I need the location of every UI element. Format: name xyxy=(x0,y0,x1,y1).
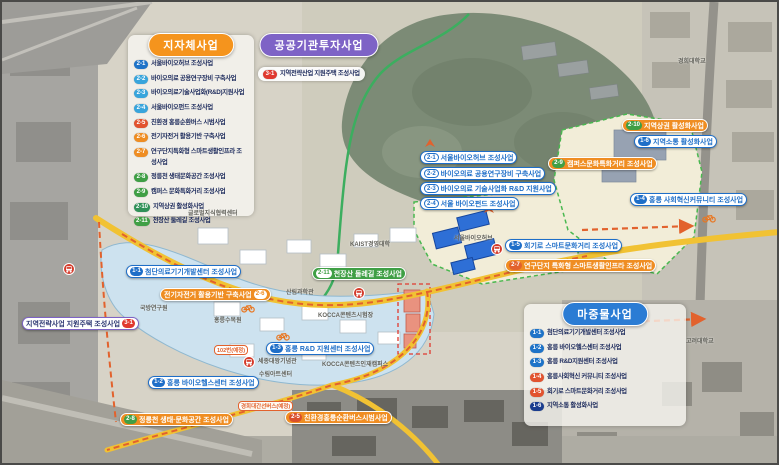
bus-stop-icon xyxy=(353,287,365,299)
map-label-2-3: 2-3바이오의료 기술사업화 R&D 지원사업 xyxy=(420,182,556,195)
map-label-2-10: 2-10지역상권 활성화사업 xyxy=(622,119,708,132)
map-label-badge: 2-1 xyxy=(424,153,439,162)
map-label-1-6: 1-6지역소통 활성화사업 xyxy=(634,135,717,148)
map-label-text: 캠퍼스문화특화거리 조성사업 xyxy=(567,159,653,169)
map-label-text: 전기자전거 활용기반 구축사업 xyxy=(164,290,252,300)
map-label-2-4: 2-4서울 바이오펀드 조성사업 xyxy=(420,197,519,210)
legend-badge: 2-11 xyxy=(134,217,150,226)
map-label-badge: 2-7 xyxy=(509,261,522,270)
map-poi-label: 서울바이오허브 xyxy=(454,233,493,242)
bus-route-tag: 102번(예정) xyxy=(214,345,248,355)
legend-item-label: 캠퍼스 문화특화거리 조성사업 xyxy=(151,187,225,198)
bicycle-icon xyxy=(276,331,290,341)
map-label-badge: 2-3 xyxy=(424,184,439,193)
map-label-1-5: 1-5회기로 스마트문화거리 조성사업 xyxy=(505,239,622,252)
panel-public-title: 공공기관투자사업 xyxy=(260,33,379,57)
panel-public-investment: 공공기관투자사업 3-1지역전략산업 지원주택 조성사업 xyxy=(256,35,382,85)
legend-badge: 2-6 xyxy=(134,133,148,142)
map-label-1-4: 1-4홍릉 사회혁신커뮤니티 조성사업 xyxy=(630,193,747,206)
legend-item-label: 친환경 홍릉순환버스 시범사업 xyxy=(151,118,225,129)
map-poi-label: 수림아트센터 xyxy=(259,369,292,378)
map-label-badge: 2-2 xyxy=(424,169,439,178)
map-label-text: 홍릉 R&D 지원센터 조성사업 xyxy=(285,344,370,354)
map-label-2-9: 2-9캠퍼스문화특화거리 조성사업 xyxy=(548,157,657,170)
legend-badge: 1-3 xyxy=(530,358,544,367)
legend-badge: 2-5 xyxy=(134,119,148,128)
bus-stop-icon xyxy=(243,356,255,368)
panel-local-title: 지자체사업 xyxy=(148,33,234,57)
map-label-text: 천장산 둘레길 조성사업 xyxy=(334,269,402,279)
legend-item-label: 회기로 스마트문화거리 조성사업 xyxy=(547,387,627,398)
legend-item-label: 서울바이오허브 조성사업 xyxy=(151,59,213,70)
legend-item: 2-11천장산 둘레길 조성사업 xyxy=(134,216,252,227)
legend-item: 2-9캠퍼스 문화특화거리 조성사업 xyxy=(134,187,252,198)
map-label-2-8: 2-8정릉천 생태·문화공간 조성사업 xyxy=(120,413,233,426)
legend-item-label: 첨단의료기기개발센터 조성사업 xyxy=(547,328,625,339)
legend-badge: 1-4 xyxy=(530,373,544,382)
map-label-badge: 1-1 xyxy=(130,267,143,276)
map-label-badge: 1-5 xyxy=(509,241,522,250)
map-poi-label: 경희대학교 xyxy=(678,56,706,65)
legend-badge: 3-1 xyxy=(263,70,277,79)
map-label-text: 바이오의료 공용연구장비 구축사업 xyxy=(441,169,542,179)
legend-item-label: 홍릉사회혁신 커뮤니티 조성사업 xyxy=(547,372,627,383)
map-label-badge: 2-4 xyxy=(424,199,439,208)
legend-item-label: 홍릉 바이오헬스센터 조성사업 xyxy=(547,343,621,354)
map-label-text: 지역상권 활성화사업 xyxy=(644,121,704,131)
map-label-text: 홍릉 사회혁신커뮤니티 조성사업 xyxy=(649,195,743,205)
bus-route-tag: 경희대간선버스(예정) xyxy=(238,401,293,411)
map-poi-label: KOCCA콘텐츠인재캠퍼스 xyxy=(322,359,388,368)
map-label-badge: 1-4 xyxy=(634,195,647,204)
legend-badge: 1-5 xyxy=(530,388,544,397)
legend-badge: 2-3 xyxy=(134,89,148,98)
map-label-2-6: 전기자전거 활용기반 구축사업2-6 xyxy=(160,288,271,301)
map-label-2-5: 2-5친환경홍릉순환버스시범사업 xyxy=(285,411,392,424)
legend-badge: 1-1 xyxy=(530,329,544,338)
map-label-text: 연구단지 특화형 스마트생활인프라 조성사업 xyxy=(524,261,652,271)
legend-item: 1-1첨단의료기기개발센터 조성사업 xyxy=(530,328,684,339)
map-label-1-3: 1-3홍릉 R&D 지원센터 조성사업 xyxy=(266,342,374,355)
map-label-1-2: 1-2홍릉 바이오헬스센터 조성사업 xyxy=(148,376,259,389)
map-poi-label: 세종대왕기념관 xyxy=(258,356,297,365)
legend-item: 2-7연구단지특화형 스마트생활인프라 조성사업 xyxy=(134,147,252,168)
legend-item-label: 전기자전거 활용기반 구축사업 xyxy=(151,132,225,143)
bicycle-icon xyxy=(241,303,255,313)
map-label-text: 서울바이오허브 조성사업 xyxy=(441,153,514,163)
map-poi-label: 홍릉수목원 xyxy=(214,315,242,324)
panel-priming-title: 마중물사업 xyxy=(562,302,648,326)
map-label-badge: 2-5 xyxy=(289,413,302,422)
legend-item-label: 바이오의료기술사업화(R&D)지원사업 xyxy=(151,88,244,99)
map-label-text: 회기로 스마트문화거리 조성사업 xyxy=(524,241,618,251)
map-label-text: 바이오의료 기술사업화 R&D 지원사업 xyxy=(441,184,552,194)
legend-badge: 2-1 xyxy=(134,60,148,69)
legend-item: 1-5회기로 스마트문화거리 조성사업 xyxy=(530,387,684,398)
map-label-badge: 2-6 xyxy=(254,290,267,299)
bicycle-icon xyxy=(702,213,716,223)
legend-item: 2-5친환경 홍릉순환버스 시범사업 xyxy=(134,118,252,129)
legend-item: 2-2바이오의료 공용연구장비 구축사업 xyxy=(134,74,252,85)
bus-stop-icon xyxy=(63,263,75,275)
map-label-text: 지역소통 활성화사업 xyxy=(653,137,713,147)
map-label-badge: 2-11 xyxy=(316,269,332,278)
bus-stop-icon xyxy=(491,243,503,255)
map-label-text: 친환경홍릉순환버스시범사업 xyxy=(304,413,388,423)
map-label-badge: 3-1 xyxy=(122,319,135,328)
legend-badge: 1-6 xyxy=(530,402,544,411)
map-label-badge: 1-2 xyxy=(152,378,165,387)
map-label-2-2: 2-2바이오의료 공용연구장비 구축사업 xyxy=(420,167,545,180)
legend-item: 3-1지역전략산업 지원주택 조성사업 xyxy=(258,67,365,82)
legend-item-label: 정릉천 생태문화공간 조성사업 xyxy=(151,172,225,183)
panel-public-list: 3-1지역전략산업 지원주택 조성사업 xyxy=(258,62,380,85)
map-label-badge: 2-9 xyxy=(552,159,565,168)
map-label-text: 첨단의료기기개발센터 조성사업 xyxy=(145,267,237,277)
map-label-2-11: 2-11천장산 둘레길 조성사업 xyxy=(312,267,406,280)
map-label-text: 서울 바이오펀드 조성사업 xyxy=(441,199,516,209)
legend-item: 2-1서울바이오허브 조성사업 xyxy=(134,59,252,70)
map-poi-label: 글로벌지식협력센터 xyxy=(188,208,238,217)
legend-badge: 1-2 xyxy=(530,344,544,353)
map-label-badge: 1-3 xyxy=(270,344,283,353)
map-label-text: 홍릉 바이오헬스센터 조성사업 xyxy=(167,378,255,388)
legend-item: 2-8정릉천 생태문화공간 조성사업 xyxy=(134,172,252,183)
legend-badge: 2-2 xyxy=(134,75,148,84)
panel-priming-list: 1-1첨단의료기기개발센터 조성사업1-2홍릉 바이오헬스센터 조성사업1-3홍… xyxy=(530,328,684,416)
legend-item-label: 천장산 둘레길 조성사업 xyxy=(153,216,211,227)
map-poi-label: KOCCA콘텐츠시험장 xyxy=(318,310,373,319)
map-label-badge: 2-10 xyxy=(626,121,642,130)
legend-item-label: 서울바이오펀드 조성사업 xyxy=(151,103,213,114)
legend-badge: 2-4 xyxy=(134,104,148,113)
map-label-text: 지역전략사업 지원주택 조성사업 xyxy=(26,319,120,329)
legend-item-label: 지역전략산업 지원주택 조성사업 xyxy=(280,69,360,80)
legend-badge: 2-10 xyxy=(134,203,150,212)
map-label-text: 정릉천 생태·문화공간 조성사업 xyxy=(139,415,229,425)
map-label-2-7: 2-7연구단지 특화형 스마트생활인프라 조성사업 xyxy=(505,259,656,272)
map-poi-label: KAIST경영대학 xyxy=(350,239,390,248)
legend-item: 1-3홍릉 R&D지원센터 조성사업 xyxy=(530,357,684,368)
legend-badge: 2-9 xyxy=(134,188,148,197)
map-label-2-1: 2-1서울바이오허브 조성사업 xyxy=(420,151,517,164)
map-label-1-1: 1-1첨단의료기기개발센터 조성사업 xyxy=(126,265,241,278)
legend-item: 2-6전기자전거 활용기반 구축사업 xyxy=(134,132,252,143)
legend-item: 1-6지역소통 활성화사업 xyxy=(530,401,684,412)
legend-item-label: 홍릉 R&D지원센터 조성사업 xyxy=(547,357,618,368)
map-label-3-1: 지역전략사업 지원주택 조성사업3-1 xyxy=(22,317,139,330)
map-poi-label: 고려대학교 xyxy=(686,336,714,345)
panel-local-projects: 지자체사업 2-1서울바이오허브 조성사업2-2바이오의료 공용연구장비 구축사… xyxy=(128,35,254,216)
map-label-badge: 1-6 xyxy=(638,137,651,146)
legend-item-label: 바이오의료 공용연구장비 구축사업 xyxy=(151,74,236,85)
panel-priming-projects: 마중물사업 1-1첨단의료기기개발센터 조성사업1-2홍릉 바이오헬스센터 조성… xyxy=(524,304,686,426)
legend-item: 2-3바이오의료기술사업화(R&D)지원사업 xyxy=(134,88,252,99)
legend-badge: 2-8 xyxy=(134,173,148,182)
route-arrow-icon xyxy=(425,139,435,151)
legend-item: 2-4서울바이오펀드 조성사업 xyxy=(134,103,252,114)
map-label-badge: 2-8 xyxy=(124,415,137,424)
panel-local-list: 2-1서울바이오허브 조성사업2-2바이오의료 공용연구장비 구축사업2-3바이… xyxy=(134,59,252,231)
legend-item: 1-4홍릉사회혁신 커뮤니티 조성사업 xyxy=(530,372,684,383)
map-poi-label: 국방연구원 xyxy=(140,303,168,312)
legend-badge: 2-7 xyxy=(134,148,148,157)
legend-item: 1-2홍릉 바이오헬스센터 조성사업 xyxy=(530,343,684,354)
legend-item-label: 지역소통 활성화사업 xyxy=(547,401,598,412)
plan-map-canvas: 경희대학교고려대학교KAIST경영대학서울바이오허브산림과학관국방연구원홍릉수목… xyxy=(0,0,779,465)
map-poi-label: 산림과학관 xyxy=(286,287,314,296)
legend-item-label: 연구단지특화형 스마트생활인프라 조성사업 xyxy=(151,147,247,168)
